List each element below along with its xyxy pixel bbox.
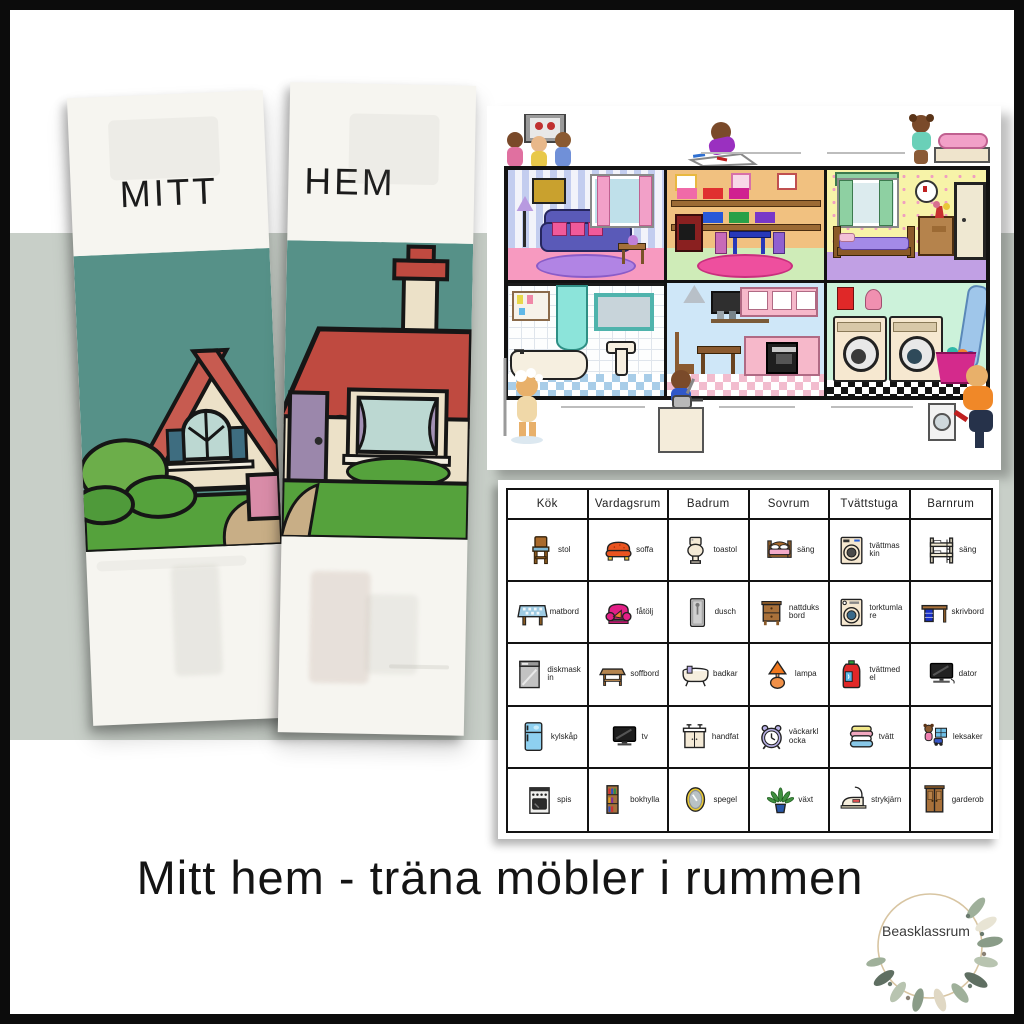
- vocab-label: tvättmaskin: [869, 542, 903, 559]
- curtain-left: [839, 180, 853, 226]
- ceiling-lamp: [683, 285, 705, 303]
- ghost-child-figure: [171, 564, 224, 676]
- door-knob: [962, 218, 966, 222]
- dishwasher-icon: [513, 658, 546, 691]
- toilet-icon: [679, 534, 712, 567]
- writing-line: [701, 152, 801, 154]
- table-leg: [761, 238, 765, 254]
- vocab-cell: diskmaskin: [508, 644, 589, 706]
- picture-frame: [532, 178, 566, 204]
- detergent-icon: [835, 658, 868, 691]
- washing-machine-icon: [835, 534, 868, 567]
- vocab-label: garderob: [952, 796, 984, 804]
- vocab-label: dusch: [715, 608, 736, 616]
- vocab-label: spegel: [713, 796, 737, 804]
- coffee-table-icon: [596, 658, 629, 691]
- vocab-cell: handfat: [669, 707, 750, 769]
- vocab-cell: dator: [911, 644, 992, 706]
- bin-red: [703, 188, 723, 199]
- vocab-label: väckarklocka: [789, 728, 823, 745]
- bin-pink: [677, 188, 697, 199]
- detergent-jug: [865, 289, 882, 310]
- armchair-icon: [602, 596, 635, 629]
- cabinet-door: [796, 291, 816, 310]
- vocab-cell: skrivbord: [911, 582, 992, 644]
- oven-window: [776, 354, 792, 364]
- table-leg: [731, 354, 735, 374]
- stove-top: [772, 347, 796, 352]
- vocab-cell: soffbord: [589, 644, 670, 706]
- house-art-left: [74, 248, 282, 552]
- vocab-label: skrivbord: [952, 608, 984, 616]
- bedroom: [827, 170, 986, 283]
- poster-page: MITT: [0, 0, 1024, 1024]
- lapbook-flap-right: HEM: [278, 82, 476, 735]
- vocab-label: stol: [558, 546, 570, 554]
- vocab-cell: spis: [508, 769, 589, 831]
- vocab-label: strykjärn: [871, 796, 901, 804]
- vocab-header-vardagsrum: Vardagsrum: [589, 490, 670, 520]
- detergent-bottle: [837, 287, 854, 310]
- child-bathing: [499, 358, 549, 450]
- vocab-cell: säng: [911, 520, 992, 582]
- kitchen-table: [697, 346, 741, 354]
- man-doing-laundry: [925, 356, 997, 456]
- table-leg: [641, 250, 644, 264]
- vocab-cell: kylskåp: [508, 707, 589, 769]
- chalkboard: [679, 224, 695, 240]
- lapbook-photo: MITT: [18, 78, 488, 750]
- vocab-cell: växt: [750, 769, 831, 831]
- clock-hands: [923, 186, 927, 192]
- dollhouse: [504, 166, 990, 400]
- dryer-icon: [835, 596, 868, 629]
- vocab-label: handfat: [712, 733, 739, 741]
- wreath-leaves: [865, 895, 1003, 1013]
- floor-lamp-pole: [523, 211, 526, 247]
- vocab-cell: badkar: [669, 644, 750, 706]
- spice-shelf: [711, 319, 769, 323]
- vocab-label: diskmaskin: [547, 666, 581, 683]
- dryer-drum: [907, 349, 922, 364]
- curtain-right: [639, 176, 652, 226]
- pillow: [839, 233, 855, 242]
- vocab-cell: tv: [589, 707, 670, 769]
- vocab-cell: väckarklocka: [750, 707, 831, 769]
- nightstand-drawer: [932, 226, 946, 232]
- vocab-label: soffa: [636, 546, 653, 554]
- curtain-right: [879, 180, 893, 226]
- cushion: [552, 222, 567, 236]
- table-leg: [733, 238, 737, 254]
- bottle: [519, 308, 525, 315]
- shower-icon: [681, 596, 714, 629]
- bin-blue: [703, 212, 723, 223]
- lamp-icon: [761, 658, 794, 691]
- vocab-table-card: KökVardagsrumBadrumSovrumTvättstugaBarnr…: [498, 480, 999, 839]
- child-drawing: [683, 120, 761, 166]
- vocab-label: badkar: [713, 670, 737, 678]
- vocab-header-barnrum: Barnrum: [911, 490, 992, 520]
- vocab-cell: strykjärn: [830, 769, 911, 831]
- vocab-header-tvättstuga: Tvättstuga: [830, 490, 911, 520]
- rug: [536, 254, 636, 278]
- jar: [717, 311, 724, 319]
- vocab-table: KökVardagsrumBadrumSovrumTvättstugaBarnr…: [506, 488, 993, 833]
- play-chair: [715, 232, 727, 254]
- wreath-illustration: Beasklassrum: [838, 880, 1014, 1018]
- desk-icon: [918, 596, 951, 629]
- bunk-bed-icon: [925, 534, 958, 567]
- vocab-cell: dusch: [669, 582, 750, 644]
- nightstand-icon: [755, 596, 788, 629]
- window-glass: [358, 398, 437, 453]
- vocab-label: fåtölj: [636, 608, 653, 616]
- pink-window: [248, 474, 281, 519]
- wall-art-house: [777, 173, 797, 190]
- iron-icon: [837, 783, 870, 816]
- vocab-label: säng: [797, 546, 814, 554]
- vocab-label: soffbord: [630, 670, 659, 678]
- play-table: [729, 231, 771, 238]
- dining-table-icon: [516, 596, 549, 629]
- vocab-cell: stol: [508, 520, 589, 582]
- laundry-pile-icon: [845, 720, 878, 753]
- nightstand: [918, 216, 954, 256]
- toys-icon: [919, 720, 952, 753]
- vocab-cell: nattduksbord: [750, 582, 831, 644]
- washer-panel: [837, 322, 881, 332]
- vocab-cell: toastol: [669, 520, 750, 582]
- vocab-label: kylskåp: [551, 733, 578, 741]
- chair-icon: [524, 534, 557, 567]
- vocab-header-sovrum: Sovrum: [750, 490, 831, 520]
- sink-pedestal: [615, 348, 628, 376]
- vocab-label: växt: [798, 796, 813, 804]
- vocab-cell: leksaker: [911, 707, 992, 769]
- vocab-label: dator: [959, 670, 977, 678]
- bin-purple: [755, 212, 775, 223]
- chimney-top: [408, 247, 434, 261]
- vocab-cell: tvättmedel: [830, 644, 911, 706]
- vocab-label: nattduksbord: [789, 604, 823, 621]
- shutter-right: [230, 427, 247, 460]
- cabinet-door: [748, 291, 768, 310]
- vocab-cell: tvättmaskin: [830, 520, 911, 582]
- vocab-cell: spegel: [669, 769, 750, 831]
- vocab-cell: tvätt: [830, 707, 911, 769]
- rug: [697, 254, 793, 278]
- table-leg: [622, 250, 625, 264]
- flap-right-bottom: [278, 562, 467, 736]
- vocab-label: tvätt: [879, 733, 894, 741]
- wardrobe-icon: [918, 783, 951, 816]
- vocab-label: lampa: [795, 670, 817, 678]
- flower-vase: [628, 235, 638, 245]
- brand-name: Beasklassrum: [882, 923, 970, 939]
- vocab-cell: garderob: [911, 769, 992, 831]
- sofa-icon: [602, 534, 635, 567]
- vocab-cell: torktumlare: [830, 582, 911, 644]
- mirror: [594, 293, 654, 331]
- children-looking-at-picture: [503, 114, 587, 170]
- bin-green: [729, 212, 749, 223]
- ghost-machine-figure: [365, 594, 419, 675]
- vocab-label: toastol: [713, 546, 737, 554]
- tv-icon: [608, 720, 641, 753]
- vocab-label: bokhylla: [630, 796, 659, 804]
- flap-left-bottom: [86, 548, 289, 726]
- cushion: [570, 222, 585, 236]
- vocab-label: matbord: [550, 608, 579, 616]
- writing-line: [719, 406, 795, 408]
- shelf-upper: [671, 200, 821, 207]
- sink-icon: [678, 720, 711, 753]
- bathtub-icon: [679, 658, 712, 691]
- vocab-cell: fåtölj: [589, 582, 670, 644]
- brand-logo: Beasklassrum: [838, 880, 1014, 1018]
- jar: [729, 311, 736, 319]
- microwave: [711, 291, 743, 314]
- vocab-cell: säng: [750, 520, 831, 582]
- mirror-icon: [679, 783, 712, 816]
- computer-icon: [925, 658, 958, 691]
- playroom: [667, 170, 826, 283]
- child-cooking: [645, 368, 715, 456]
- child-making-bed: [905, 112, 993, 168]
- print-bleed-ghost: [348, 113, 439, 185]
- vocab-header-kök: Kök: [508, 490, 589, 520]
- vocab-label: leksaker: [953, 733, 983, 741]
- bottle: [517, 295, 523, 304]
- vocab-label: spis: [557, 796, 571, 804]
- chimney: [403, 272, 437, 335]
- bin-magenta: [729, 188, 749, 199]
- cabinet-door: [772, 291, 792, 310]
- vocab-cell: matbord: [508, 582, 589, 644]
- vocab-label: tv: [642, 733, 648, 741]
- vocab-label: tvättmedel: [869, 666, 903, 683]
- lapbook-flap-left: MITT: [67, 90, 289, 726]
- stove-icon: [523, 783, 556, 816]
- chimney-cap: [394, 260, 447, 279]
- living-room: [508, 170, 667, 283]
- writing-line: [831, 406, 913, 408]
- bottle: [527, 295, 533, 304]
- bookshelf-icon: [596, 783, 629, 816]
- dollhouse-card: [487, 106, 1001, 470]
- vocab-cell: lampa: [750, 644, 831, 706]
- print-bleed-ghost: [108, 116, 220, 181]
- alarm-clock-icon: [755, 720, 788, 753]
- ghost-child-figure: [309, 571, 371, 684]
- vocab-label: säng: [959, 546, 976, 554]
- shower-curtain: [556, 285, 588, 351]
- plant-icon: [764, 783, 797, 816]
- vocab-cell: soffa: [589, 520, 670, 582]
- curtain-left: [597, 176, 610, 226]
- flower: [943, 203, 950, 210]
- bed-icon: [763, 534, 796, 567]
- vocab-label: torktumlare: [869, 604, 903, 621]
- washer-drum: [851, 349, 866, 364]
- writing-line: [561, 406, 645, 408]
- door: [954, 182, 986, 260]
- vocab-header-badrum: Badrum: [669, 490, 750, 520]
- house-art-right: [282, 240, 474, 540]
- fridge-icon: [517, 720, 550, 753]
- play-chair: [773, 232, 785, 254]
- dryer-panel: [893, 322, 937, 332]
- vocab-cell: bokhylla: [589, 769, 670, 831]
- shutter-left: [167, 430, 184, 463]
- flower: [933, 201, 940, 208]
- writing-line: [827, 152, 905, 154]
